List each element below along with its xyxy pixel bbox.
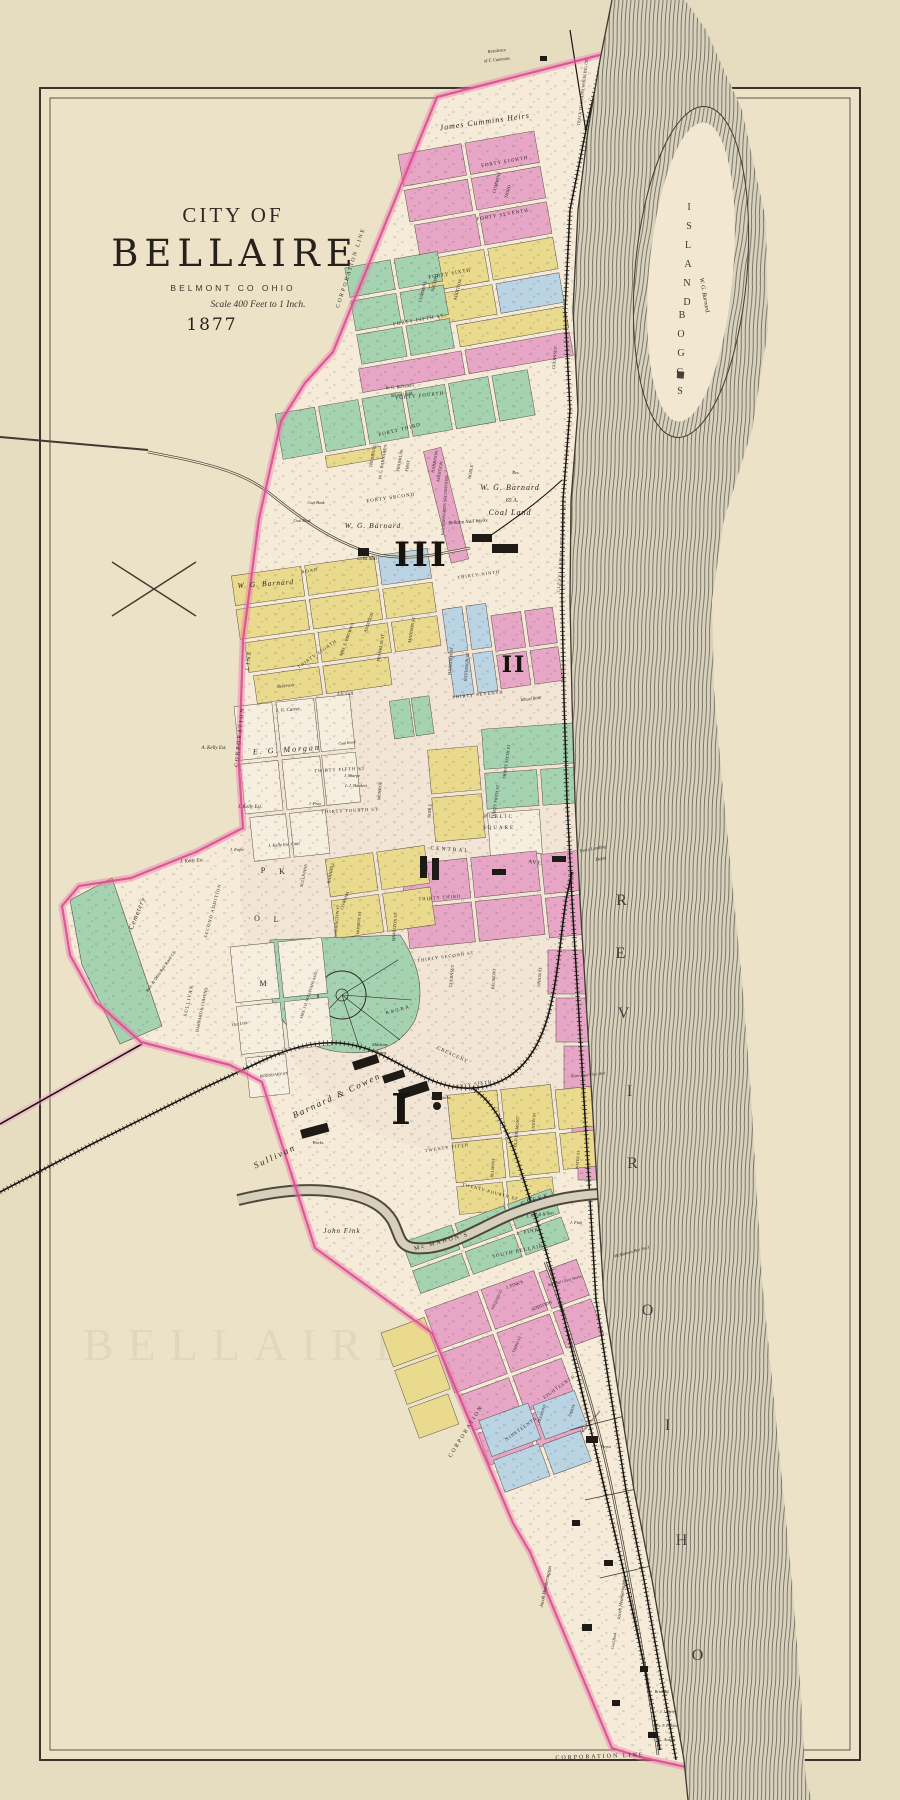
map-label: Coal Bank: [308, 500, 325, 505]
map-label: M: [259, 979, 266, 988]
map-label: K: [279, 867, 285, 876]
map-label: Brick Yd.: [655, 1689, 670, 1694]
island-name-letter: L: [685, 240, 691, 251]
title-prefix: City of: [182, 203, 283, 227]
map-label: Coal Land: [488, 508, 531, 517]
island-name-letter: I: [687, 202, 690, 213]
river-name-letter: R: [616, 892, 628, 909]
map-label: Works: [312, 1140, 323, 1145]
title-scale: Scale 400 Feet to 1 Inch.: [211, 300, 306, 310]
map-label: J.S. Gill: [337, 692, 354, 697]
map-label: L.J. Hackett: [344, 783, 368, 788]
island-name-letter: O: [677, 329, 684, 340]
island-name-letter: S: [686, 221, 692, 232]
river-name-letter: O: [692, 1647, 705, 1664]
river-name-letter: E: [616, 945, 627, 962]
island-name-letter: G: [677, 348, 684, 359]
island-name-letter: N: [683, 278, 690, 289]
map-label: Gas Works: [431, 1095, 451, 1100]
map-label: Depot: [600, 1444, 612, 1449]
map-label: Grist Mill: [357, 557, 377, 562]
map-label: J. Kelly Est.: [238, 805, 262, 810]
island-name-letter: G: [676, 367, 683, 378]
map-label: SQUARE: [483, 826, 515, 831]
map-label: L: [274, 915, 279, 924]
map-label: L. Austin: [658, 1737, 676, 1742]
title-name: BELLAIRE: [111, 232, 359, 275]
map-label: W. G. Barnard: [345, 521, 402, 530]
map-label: A. Kelly Est.: [201, 746, 227, 751]
map-label: Res.: [511, 470, 520, 475]
map-label: J. Lafferty: [660, 1709, 677, 1714]
island-name-letter: B: [679, 310, 686, 321]
ward-numeral: III: [394, 535, 448, 575]
map-label: W. G. Barnard: [480, 483, 540, 492]
map-label: O: [254, 914, 260, 923]
island-name-letter: A: [684, 259, 692, 270]
ward-numeral: II: [502, 652, 527, 678]
river-name-letter: H: [676, 1532, 689, 1549]
map-label: J. Pray: [309, 801, 322, 806]
map-label: 65 A.: [506, 498, 519, 504]
river-name-letter: V: [618, 1005, 631, 1022]
map-label: Shops: [376, 1050, 387, 1055]
map-label: John Fink: [323, 1227, 360, 1235]
map-label: PUBLIC: [484, 815, 514, 820]
river-name-letter: I: [627, 1083, 633, 1100]
title-year: 1877: [186, 315, 237, 335]
river-name-letter: I: [665, 1417, 671, 1434]
map-label: P: [261, 866, 266, 875]
river-name-letter: O: [642, 1302, 655, 1319]
island-name-letter: S: [677, 386, 683, 397]
map-label: Mrs. F. Heeson: [653, 1723, 678, 1728]
bellaire-1877-map: BELLAIRE: [0, 0, 900, 1800]
map-label: J. Sharpe: [344, 773, 360, 778]
map-label: J. Fink: [570, 1220, 583, 1225]
island-name-letter: D: [683, 297, 690, 308]
ghost-text: BELLAIRE: [83, 1319, 417, 1370]
river-name-letter: R: [627, 1155, 639, 1172]
map-label: Coal Bank: [294, 518, 311, 523]
title-county: BELMONT CO OHIO: [170, 283, 295, 293]
map-label: Machine: [371, 1042, 388, 1047]
map-label: J. Enfer: [230, 847, 244, 852]
ward-numeral: I: [391, 1085, 413, 1134]
